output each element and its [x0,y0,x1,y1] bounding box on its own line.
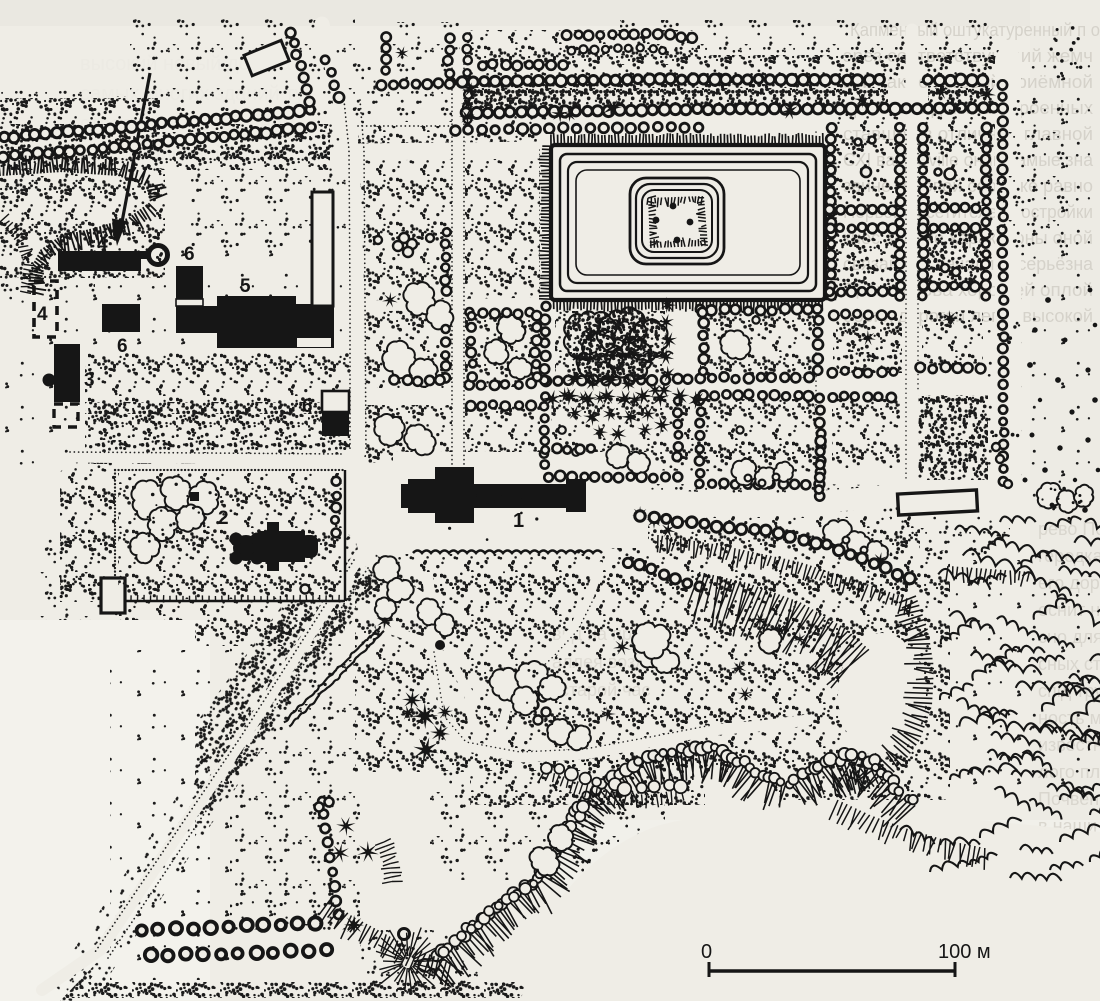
svg-text:5: 5 [240,276,251,297]
svg-text:100 м: 100 м [938,941,991,963]
svg-text:3: 3 [84,370,95,391]
svg-text:6: 6 [302,396,313,417]
svg-text:6: 6 [117,336,128,357]
svg-text:4: 4 [97,234,108,255]
svg-text:4: 4 [37,304,48,325]
svg-text:6: 6 [184,244,195,265]
svg-text:0: 0 [701,941,712,963]
svg-text:2: 2 [218,508,229,529]
